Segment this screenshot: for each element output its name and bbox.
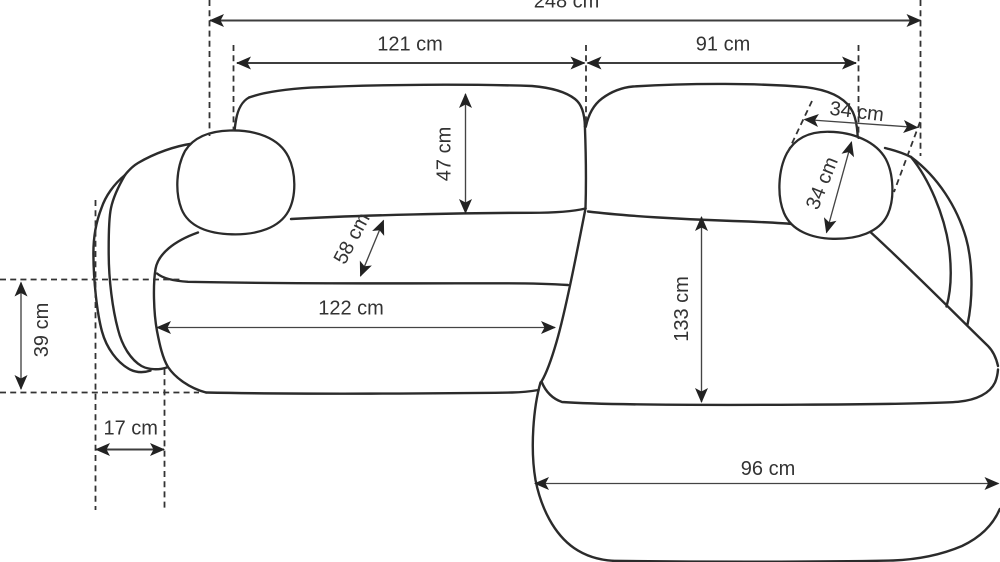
svg-text:39 cm: 39 cm bbox=[31, 303, 53, 357]
svg-text:248 cm: 248 cm bbox=[534, 0, 600, 13]
svg-text:91 cm: 91 cm bbox=[696, 34, 750, 56]
svg-text:47 cm: 47 cm bbox=[434, 127, 456, 181]
svg-text:133 cm: 133 cm bbox=[671, 276, 693, 342]
svg-text:17 cm: 17 cm bbox=[103, 418, 157, 440]
svg-text:96 cm: 96 cm bbox=[741, 458, 795, 480]
svg-text:122 cm: 122 cm bbox=[318, 297, 384, 319]
svg-text:121 cm: 121 cm bbox=[377, 34, 443, 56]
